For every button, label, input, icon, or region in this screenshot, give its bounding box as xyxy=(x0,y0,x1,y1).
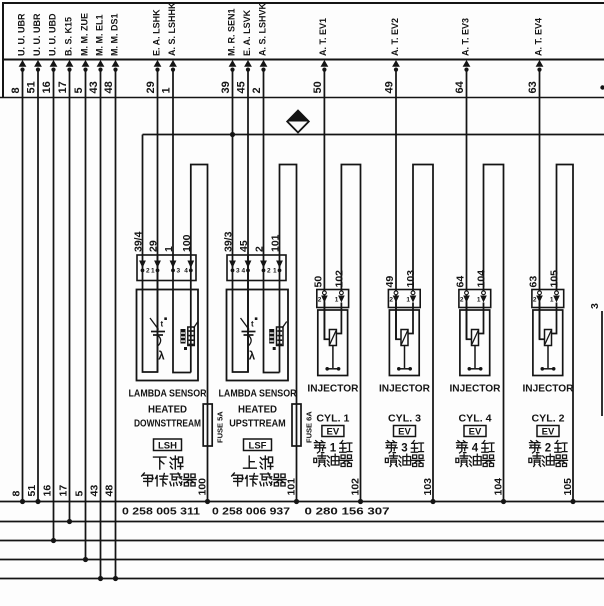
svg-text:E. A. LSHK: E. A. LSHK xyxy=(151,9,161,56)
svg-text:LSH: LSH xyxy=(158,440,177,451)
svg-text:103: 103 xyxy=(405,270,417,288)
svg-text:EV: EV xyxy=(327,426,340,437)
svg-text:A. S. LSHVK: A. S. LSHVK xyxy=(257,2,267,56)
svg-text:4: 4 xyxy=(184,268,188,275)
svg-text:M. M. ZUE: M. M. ZUE xyxy=(79,13,89,56)
svg-text:39/3: 39/3 xyxy=(223,231,235,252)
svg-text:2: 2 xyxy=(533,297,537,304)
svg-text:A. T. EV1: A. T. EV1 xyxy=(318,18,328,56)
svg-text:B. S. K15: B. S. K15 xyxy=(63,17,73,56)
svg-text:49: 49 xyxy=(384,81,396,93)
svg-text:39/4: 39/4 xyxy=(133,231,145,252)
svg-text:45: 45 xyxy=(238,240,250,252)
svg-text:1: 1 xyxy=(477,297,481,304)
svg-text:29: 29 xyxy=(145,81,157,93)
svg-text:1: 1 xyxy=(406,297,410,304)
svg-text:16: 16 xyxy=(42,485,54,497)
svg-text:2: 2 xyxy=(545,442,551,454)
svg-text:17: 17 xyxy=(58,485,70,497)
svg-text:101: 101 xyxy=(286,478,298,496)
svg-text:INJECTOR: INJECTOR xyxy=(450,383,502,394)
svg-text:UPSTTREAM: UPSTTREAM xyxy=(229,419,286,430)
svg-text:105: 105 xyxy=(549,270,561,288)
svg-text:λ: λ xyxy=(158,351,165,363)
svg-text:100: 100 xyxy=(181,234,193,252)
svg-text:E. A. LSVK: E. A. LSVK xyxy=(242,9,252,56)
svg-text:39: 39 xyxy=(220,81,232,93)
svg-text:50: 50 xyxy=(312,81,324,93)
svg-text:EV: EV xyxy=(398,426,411,437)
svg-text:100: 100 xyxy=(197,478,209,496)
svg-text:INJECTOR: INJECTOR xyxy=(379,383,431,394)
svg-text:45: 45 xyxy=(236,81,248,93)
svg-text:16: 16 xyxy=(41,81,53,93)
svg-text:49: 49 xyxy=(384,276,396,288)
svg-text:8: 8 xyxy=(10,87,22,93)
svg-text:64: 64 xyxy=(455,276,467,288)
svg-text:104: 104 xyxy=(476,270,488,288)
svg-text:CYL. 4: CYL. 4 xyxy=(459,414,492,425)
svg-text:A. T. EV4: A. T. EV4 xyxy=(533,18,543,56)
svg-text:5: 5 xyxy=(74,491,86,497)
svg-text:A. T. EV2: A. T. EV2 xyxy=(390,18,400,56)
svg-text:48: 48 xyxy=(104,485,116,497)
svg-text:4: 4 xyxy=(241,268,245,275)
svg-text:t: t xyxy=(160,320,163,329)
svg-text:LAMBDA SENSOR: LAMBDA SENSOR xyxy=(129,388,208,399)
svg-text:INJECTOR: INJECTOR xyxy=(307,383,359,394)
svg-text:43: 43 xyxy=(89,485,101,497)
svg-text:3: 3 xyxy=(401,442,407,454)
svg-text:17: 17 xyxy=(57,81,69,93)
svg-text:3: 3 xyxy=(176,268,180,275)
svg-text:5: 5 xyxy=(73,87,85,93)
svg-text:2: 2 xyxy=(460,297,464,304)
svg-text:1: 1 xyxy=(335,297,339,304)
svg-text:2: 2 xyxy=(267,268,271,275)
svg-text:M. R. SEN1: M. R. SEN1 xyxy=(226,8,236,56)
svg-text:3: 3 xyxy=(589,303,601,309)
svg-text:102: 102 xyxy=(350,478,362,496)
svg-text:63: 63 xyxy=(528,276,540,288)
svg-text:0 258 005 311: 0 258 005 311 xyxy=(122,507,200,518)
svg-text:1: 1 xyxy=(151,268,155,275)
svg-text:LSF: LSF xyxy=(249,440,267,451)
svg-text:2: 2 xyxy=(389,297,393,304)
svg-text:1: 1 xyxy=(161,87,173,93)
svg-text:63: 63 xyxy=(527,81,539,93)
svg-text:M. M. EL1: M. M. EL1 xyxy=(94,14,104,56)
svg-text:EV: EV xyxy=(469,426,482,437)
svg-text:0 280 156 307: 0 280 156 307 xyxy=(305,507,390,518)
svg-text:U. U. UBR: U. U. UBR xyxy=(16,13,26,56)
svg-text:U. U. UBR: U. U. UBR xyxy=(32,13,42,56)
svg-text:2: 2 xyxy=(318,297,322,304)
svg-text:INJECTOR: INJECTOR xyxy=(523,383,575,394)
svg-text:CYL. 3: CYL. 3 xyxy=(388,414,421,425)
svg-text:2: 2 xyxy=(251,87,263,93)
svg-text:λ: λ xyxy=(249,351,256,363)
svg-text:0 258 006 937: 0 258 006 937 xyxy=(212,507,290,518)
svg-text:A. S. LSHHK: A. S. LSHHK xyxy=(167,2,177,56)
svg-text:105: 105 xyxy=(562,478,574,496)
svg-text:1: 1 xyxy=(330,442,337,454)
svg-text:2: 2 xyxy=(146,268,150,275)
svg-text:DOWNSTTREAM: DOWNSTTREAM xyxy=(134,419,201,430)
svg-text:8: 8 xyxy=(11,491,23,497)
svg-text:CYL. 1: CYL. 1 xyxy=(316,414,349,425)
svg-text:4: 4 xyxy=(472,442,479,454)
svg-text:1: 1 xyxy=(273,268,277,275)
svg-text:M. M. DS1: M. M. DS1 xyxy=(109,13,119,56)
svg-text:t: t xyxy=(251,320,254,329)
svg-text:EV: EV xyxy=(542,426,555,437)
svg-text:3: 3 xyxy=(236,268,240,275)
svg-text:A. T. EV3: A. T. EV3 xyxy=(460,18,470,56)
svg-text:51: 51 xyxy=(26,81,38,93)
svg-text:2: 2 xyxy=(254,246,266,252)
svg-text:104: 104 xyxy=(493,478,505,496)
svg-text:FUSE 6A: FUSE 6A xyxy=(305,411,314,443)
svg-text:43: 43 xyxy=(88,81,100,93)
svg-text:U. U. UBD: U. U. UBD xyxy=(47,13,57,56)
svg-text:48: 48 xyxy=(103,81,115,93)
svg-text:101: 101 xyxy=(270,234,282,252)
svg-text:CYL. 2: CYL. 2 xyxy=(532,414,565,425)
svg-text:103: 103 xyxy=(422,478,434,496)
svg-text:1: 1 xyxy=(163,246,175,252)
svg-text:HEATED: HEATED xyxy=(238,404,277,415)
svg-text:64: 64 xyxy=(454,80,466,93)
svg-text:51: 51 xyxy=(26,485,38,497)
svg-text:102: 102 xyxy=(333,270,345,288)
svg-text:1: 1 xyxy=(550,297,554,304)
svg-text:LAMBDA SENSOR: LAMBDA SENSOR xyxy=(219,388,298,399)
svg-text:FUSE 5A: FUSE 5A xyxy=(216,411,225,443)
svg-text:29: 29 xyxy=(148,240,160,252)
svg-text:HEATED: HEATED xyxy=(148,404,187,415)
svg-text:50: 50 xyxy=(312,276,324,288)
